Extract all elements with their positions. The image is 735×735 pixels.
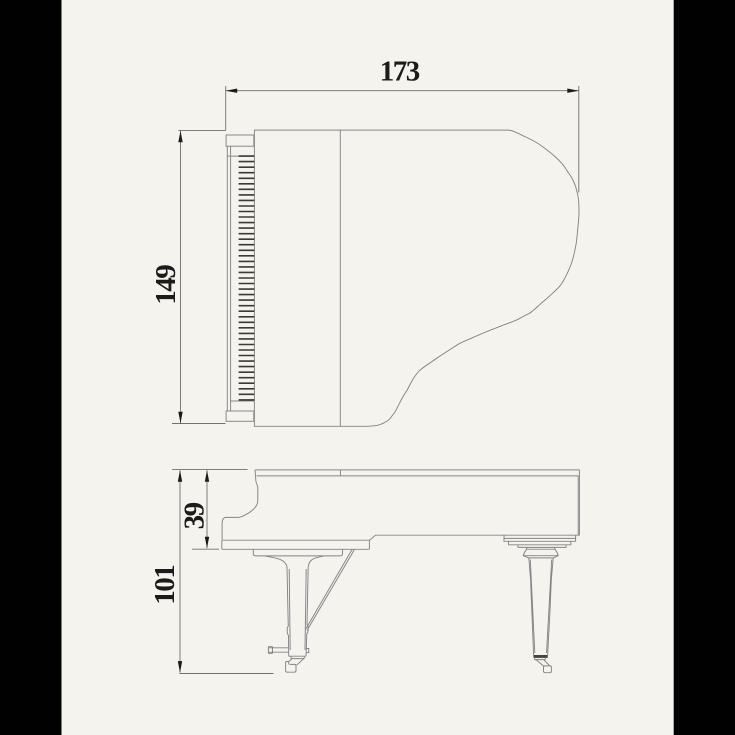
svg-text:39: 39	[179, 502, 211, 529]
svg-text:149: 149	[150, 265, 182, 305]
svg-text:173: 173	[380, 55, 420, 87]
svg-text:101: 101	[149, 566, 181, 605]
